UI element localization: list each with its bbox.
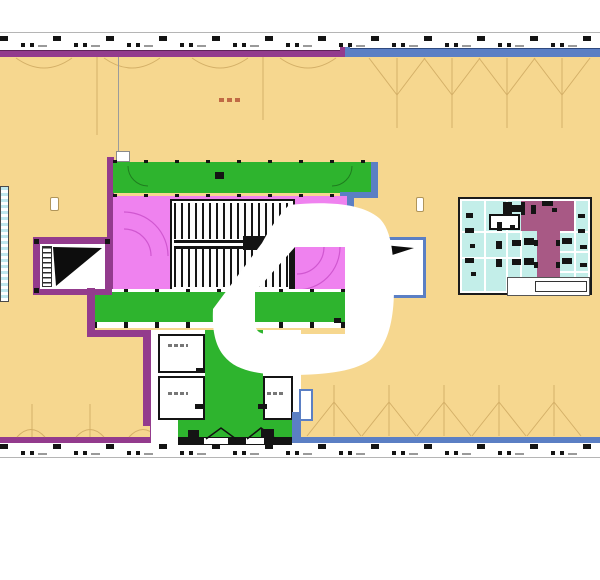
floor-plan-canvas xyxy=(0,0,600,580)
logo-watermark xyxy=(0,0,600,580)
